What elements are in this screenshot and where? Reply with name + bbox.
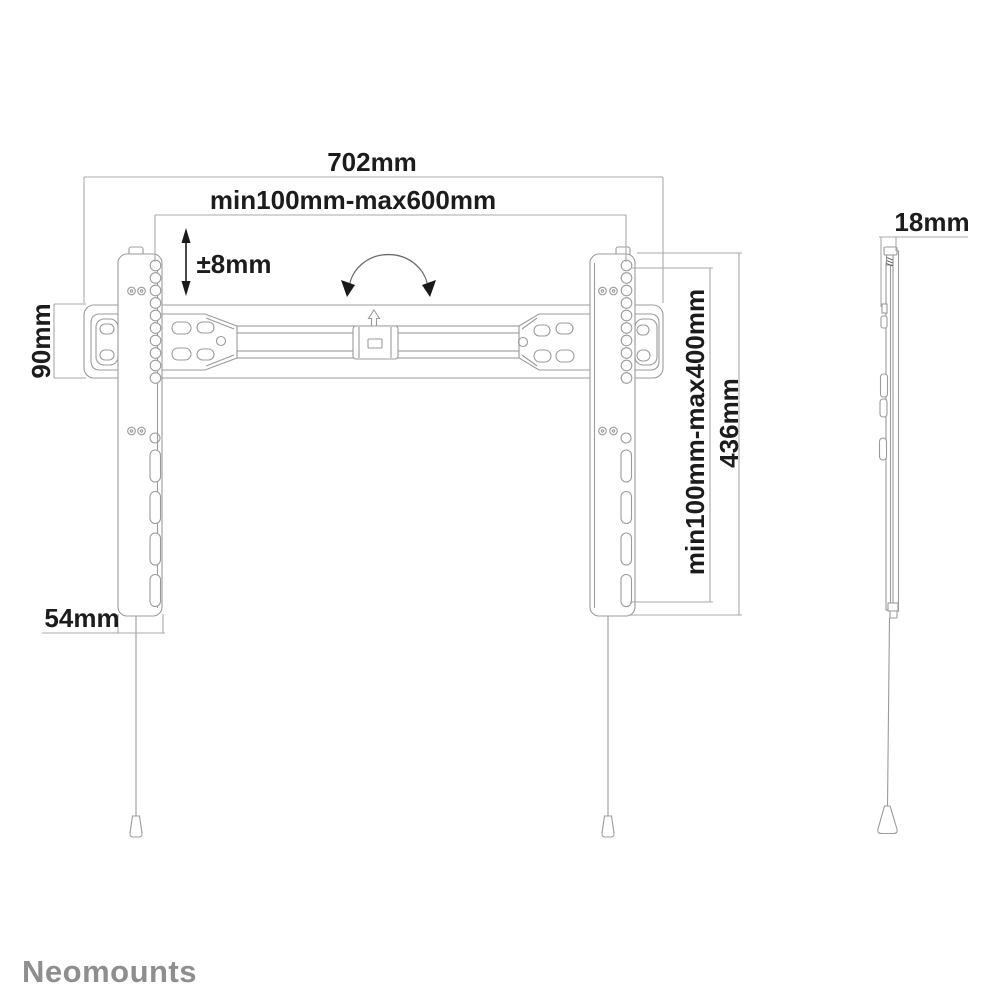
brand-logo: Neomounts: [22, 956, 197, 987]
pull-cord: [888, 618, 890, 806]
cord-handle: [130, 816, 142, 837]
right-tv-rail: [590, 247, 635, 837]
center-clamp: [353, 326, 398, 359]
wall-plate-left-section: [91, 314, 237, 370]
side-wall-plate: [893, 251, 899, 611]
dim-depth-label: 18mm: [894, 209, 969, 235]
cord-handle: [602, 816, 614, 837]
wall-plate-right-section: [519, 314, 660, 370]
cord-handle: [878, 806, 897, 834]
rotation-arrow-icon: [341, 255, 436, 297]
dim-plate-height-label: 90mm: [28, 303, 54, 378]
updown-arrow-icon: [182, 228, 191, 296]
dim-90-lines: [54, 304, 86, 378]
dim-total-width-label: 702mm: [327, 149, 417, 175]
side-rail-arm: [886, 263, 891, 610]
dimension-lines: [42, 177, 968, 633]
dim-vertical-vesa-label: min100mm-max400mm: [682, 289, 708, 575]
side-view: [878, 247, 899, 834]
left-tv-rail: [118, 247, 162, 837]
side-foot: [888, 603, 898, 618]
line-drawing: [0, 0, 1000, 1000]
dim-horizontal-vesa-label: min100mm-max600mm: [210, 187, 496, 213]
dim-height-adjustment-label: ±8mm: [197, 251, 272, 277]
dim-rail-height-label: 436mm: [716, 378, 742, 468]
dim-rail-width-label: 54mm: [44, 605, 119, 631]
front-view: [84, 247, 663, 837]
wall-mount-dimension-diagram: 702mm min100mm-max600mm ±8mm 90mm 54mm m…: [0, 0, 1000, 1000]
